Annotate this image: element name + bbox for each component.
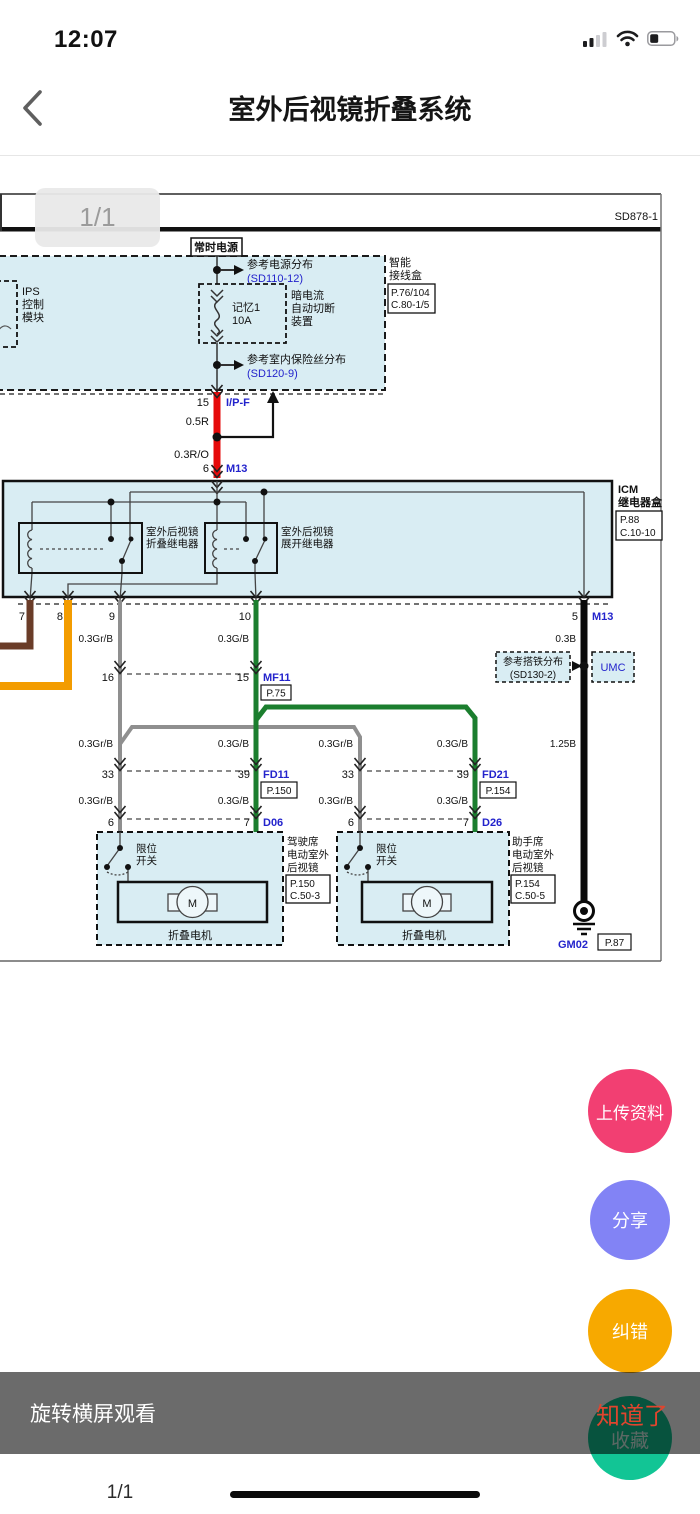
icm-ref2: C.10-10 (620, 528, 656, 539)
limit-switch-label2: 开关 (136, 854, 157, 867)
junction-dot (580, 662, 589, 671)
driver-label1: 驾驶席 (287, 835, 319, 848)
share-fab-button[interactable]: 分享 (590, 1180, 670, 1260)
pin-15: 15 (197, 397, 209, 409)
arrow-up-icon (267, 391, 279, 403)
passenger-label2: 电动室外 (512, 848, 554, 861)
icm-name1: ICM (618, 484, 638, 496)
passenger-label1: 助手席 (512, 835, 544, 848)
wire-label: 0.3Gr/B (79, 634, 114, 645)
driver-label3: 后视镜 (287, 861, 319, 874)
conn-ipf: I/P-F (226, 397, 250, 409)
upload-fab-button[interactable]: 上传资料 (588, 1069, 672, 1153)
umc-label: UMC (600, 662, 625, 674)
limit-switch-label1: 限位 (136, 842, 157, 855)
page-indicator-badge: 1/1 (35, 188, 160, 247)
pin-33b: 33 (342, 769, 354, 781)
wire-label: 0.3B (555, 634, 576, 645)
ground-symbol: GM02 P.87 (558, 902, 631, 952)
wire-label: 0.3G/B (218, 796, 249, 807)
pin-9: 9 (109, 611, 115, 623)
report-error-fab-button[interactable]: 纠错 (588, 1289, 672, 1373)
wire-03ro: 0.3R/O (174, 449, 209, 461)
wire-label: 0.3Gr/B (319, 796, 354, 807)
pin-39b: 39 (457, 769, 469, 781)
passenger-ref1: P.154 (515, 879, 540, 890)
motor-m: M (188, 898, 197, 910)
pin-6-d06: 6 (108, 817, 114, 829)
fold-motor-label: 折叠电机 (168, 928, 212, 942)
relay-fold-label2: 折叠继电器 (146, 537, 199, 550)
relay-unfold-label1: 室外后视镜 (281, 525, 334, 538)
sjb-ref2: C.80-1/5 (391, 300, 430, 311)
wiring-diagram: SD878-1 常时电源 智能 接线盒 P.76/104 C.80-1/5 IP… (0, 0, 700, 1000)
wiring-diagram-canvas[interactable]: SD878-1 常时电源 智能 接线盒 P.76/104 C.80-1/5 IP… (0, 0, 700, 1000)
conn-mf11: MF11 (263, 672, 291, 684)
icm-name2: 继电器盒 (618, 495, 663, 509)
sheet-code: SD878-1 (615, 211, 658, 223)
wire-label: 0.3G/B (437, 739, 468, 750)
conn-d06: D06 (263, 817, 283, 829)
pin-6-d26: 6 (348, 817, 354, 829)
fold-motor-label: 折叠电机 (402, 928, 446, 942)
fuse-dist-ref: (SD120-9) (247, 368, 298, 380)
ips-label3: 模块 (22, 311, 44, 324)
fuse-dist-label: 参考室内保险丝分布 (247, 352, 346, 366)
ref-p154: P.154 (486, 786, 511, 797)
power-dist-label: 参考电源分布 (247, 257, 313, 271)
limit-switch-label2: 开关 (376, 854, 397, 867)
passenger-label3: 后视镜 (512, 861, 544, 874)
conn-fd21: FD21 (482, 769, 509, 781)
pin-16: 16 (102, 672, 114, 684)
dark-current-label3: 装置 (291, 315, 313, 328)
junction-dot (213, 361, 221, 369)
wire-label: 0.3G/B (437, 796, 468, 807)
dark-current-label2: 自动切断 (291, 301, 335, 315)
passenger-mirror-motor: 限位 开关 M 折叠电机 (337, 832, 509, 945)
pin-6: 6 (203, 463, 209, 475)
rotate-tip-text: 旋转横屏观看 (30, 1372, 156, 1454)
wire-brown (0, 600, 30, 646)
home-indicator (230, 1491, 480, 1498)
footer-page-number: 1/1 (98, 1482, 142, 1504)
pin-39: 39 (238, 769, 250, 781)
ref-p150: P.150 (267, 786, 292, 797)
relay-fold-label1: 室外后视镜 (146, 525, 199, 538)
ground-ref: P.87 (605, 938, 625, 949)
wire-label: 0.3G/B (218, 634, 249, 645)
limit-switch-label1: 限位 (376, 842, 397, 855)
motor-m: M (422, 898, 431, 910)
sjb-ref1: P.76/104 (391, 288, 430, 299)
pin-5: 5 (572, 611, 578, 623)
pin-8: 8 (57, 611, 63, 623)
sjb-name: 智能 (389, 255, 411, 269)
passenger-ref2: C.50-5 (515, 891, 545, 902)
relay-unfold-label2: 展开继电器 (281, 537, 334, 550)
ref-p75: P.75 (266, 689, 286, 700)
ips-label2: 控制 (22, 297, 44, 311)
driver-label2: 电动室外 (287, 848, 329, 861)
icm-ref1: P.88 (620, 515, 640, 526)
rotate-tip-bar: 旋转横屏观看 知道了 (0, 1372, 700, 1454)
ground-dist-ref: (SD130-2) (510, 670, 556, 681)
ground-dist-label: 参考搭铁分布 (503, 655, 563, 668)
pin-33: 33 (102, 769, 114, 781)
junction-dot (213, 433, 222, 442)
pin-7-d26: 7 (463, 817, 469, 829)
fuse-rating: 10A (232, 315, 252, 327)
pin-7-d06: 7 (244, 817, 250, 829)
pin-7: 7 (19, 611, 25, 623)
fuse-name: 记忆1 (232, 301, 260, 314)
wire-label: 0.3Gr/B (79, 796, 114, 807)
constant-power-label: 常时电源 (194, 240, 238, 254)
wire-label: 0.3G/B (218, 739, 249, 750)
wire-label: 0.3Gr/B (319, 739, 354, 750)
ground-gm02: GM02 (558, 939, 588, 951)
driver-ref2: C.50-3 (290, 891, 320, 902)
wire-label: 1.25B (550, 739, 576, 750)
icm-relay-box: 室外后视镜 折叠继电器 室外后视镜 展开继电器 ICM 继电器盒 P.88 C.… (3, 481, 663, 600)
got-it-button[interactable]: 知道了 (596, 1372, 668, 1454)
dark-current-label1: 暗电流 (291, 288, 324, 302)
conn-m13-bottom: M13 (592, 611, 613, 623)
conn-fd11: FD11 (263, 769, 289, 781)
wire-label: 0.3Gr/B (79, 739, 114, 750)
pin-10: 10 (239, 611, 251, 623)
ips-label1: IPS (22, 286, 40, 298)
pin-15b: 15 (237, 672, 249, 684)
junction-dot (213, 266, 221, 274)
conn-m13: M13 (226, 463, 247, 475)
conn-d26: D26 (482, 817, 502, 829)
wire-05r: 0.5R (186, 416, 209, 428)
sjb-name2: 接线盒 (389, 268, 422, 282)
driver-mirror-motor: 限位 开关 M 折叠电机 (97, 832, 283, 945)
driver-ref1: P.150 (290, 879, 315, 890)
